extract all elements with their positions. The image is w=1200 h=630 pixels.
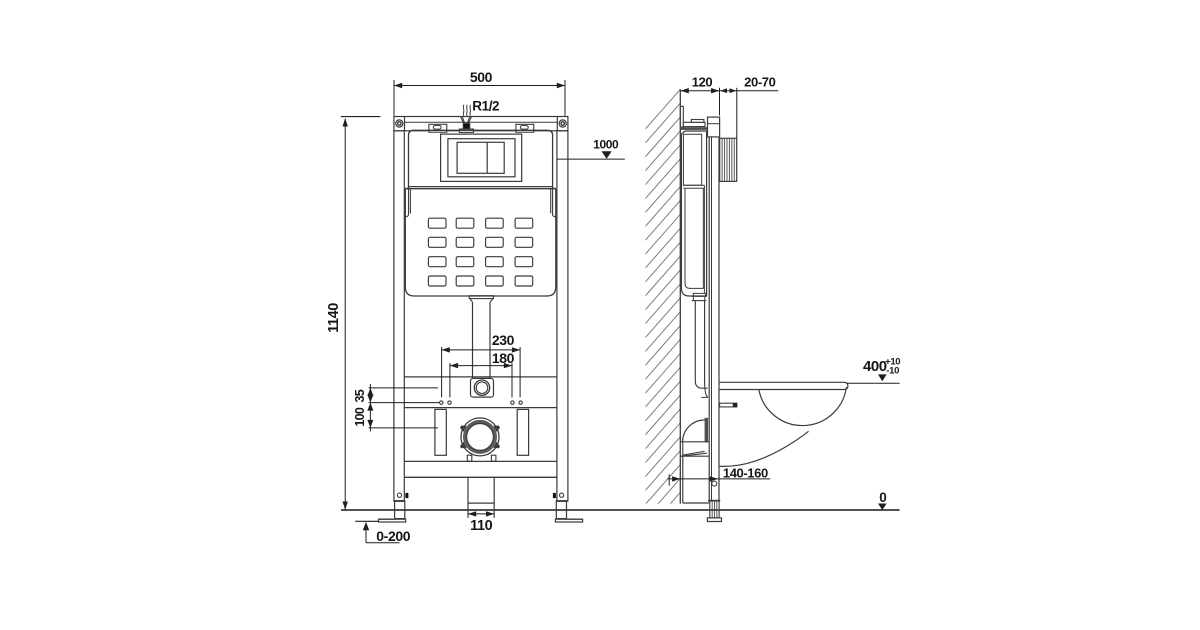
svg-text:0-200: 0-200	[376, 528, 410, 544]
svg-text:180: 180	[492, 350, 515, 366]
svg-text:230: 230	[492, 332, 515, 348]
svg-text:0: 0	[879, 490, 886, 505]
svg-text:1000: 1000	[593, 137, 619, 151]
svg-text:120: 120	[692, 75, 713, 90]
svg-text:400: 400	[863, 358, 887, 375]
svg-text:R1/2: R1/2	[472, 99, 499, 114]
svg-text:-10: -10	[886, 366, 899, 377]
svg-text:500: 500	[470, 69, 493, 85]
svg-text:140-160: 140-160	[723, 466, 768, 481]
svg-text:35: 35	[353, 389, 367, 402]
svg-text:1140: 1140	[326, 303, 342, 333]
svg-text:20-70: 20-70	[744, 75, 775, 90]
svg-text:100: 100	[353, 407, 367, 427]
svg-text:110: 110	[470, 518, 493, 534]
